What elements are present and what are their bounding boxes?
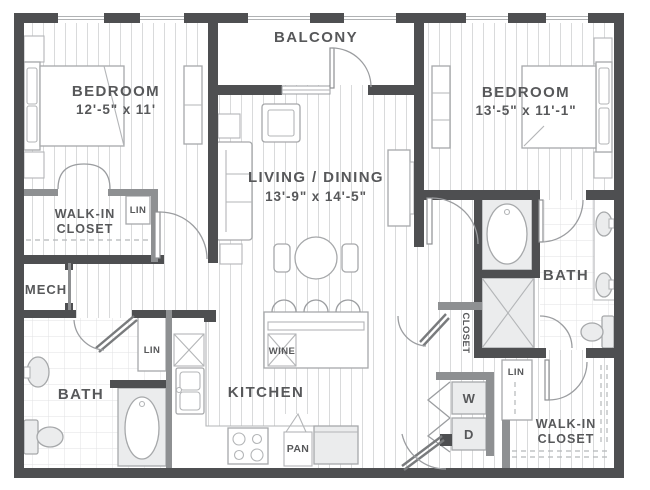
side-table	[220, 244, 242, 264]
window	[140, 13, 184, 23]
pantry-label: PAN	[287, 443, 310, 455]
mech-label: MECH	[25, 282, 67, 297]
bath-right-label: BATH	[543, 267, 589, 284]
bedroom-left-label: BEDROOM	[72, 83, 160, 100]
washer-label: W	[463, 391, 476, 406]
walk-in-closet-right-line1: WALK-IN	[536, 417, 596, 431]
floor-plan: BALCONY BEDROOM 12'-5" x 11' BEDROOM 13'…	[0, 0, 650, 490]
linen-closet-left-bath	[138, 315, 166, 371]
dining-chair	[342, 244, 358, 272]
living-dining-dims: 13'-9" x 14'-5"	[265, 189, 367, 204]
linen-label: LIN	[508, 367, 525, 378]
refrigerator	[314, 426, 358, 464]
wall-right	[614, 13, 624, 478]
bath-left-label: BATH	[58, 386, 104, 403]
living-dining-label: LIVING / DINING	[248, 169, 384, 186]
linen-label: LIN	[144, 345, 161, 356]
nightstand	[594, 152, 612, 178]
wall-living-bedroom-right	[414, 23, 424, 247]
walk-in-closet-left-line2: CLOSET	[57, 222, 114, 236]
kitchen-label: KITCHEN	[228, 384, 304, 401]
pillow	[27, 106, 37, 142]
dresser	[432, 66, 450, 148]
balcony-wall	[368, 85, 414, 95]
balcony-railing	[344, 13, 396, 23]
side-table	[218, 114, 240, 138]
nightstand	[24, 152, 44, 178]
hall-closet-label: CLOSET	[460, 313, 471, 354]
wall-bottom	[14, 468, 624, 478]
pillow	[599, 68, 609, 104]
dining-table	[295, 237, 337, 279]
pillow	[599, 108, 609, 144]
bathtub-left	[118, 388, 166, 466]
dining-chair	[274, 244, 290, 272]
nightstand	[24, 36, 44, 62]
sofa	[216, 142, 252, 240]
bedroom-right-label: BEDROOM	[482, 84, 570, 101]
nightstand	[594, 38, 612, 64]
walk-in-closet-left-line1: WALK-IN	[55, 207, 115, 221]
walk-in-closet-right-line2: CLOSET	[538, 432, 595, 446]
window	[546, 13, 588, 23]
bedroom-right-dims: 13'-5" x 11'-1"	[475, 103, 576, 118]
armchair-cushion	[268, 110, 294, 136]
wine-label: WINE	[269, 346, 295, 357]
balcony-wall	[218, 85, 282, 95]
dryer-label: D	[464, 427, 474, 442]
wall-living-bedroom-left	[208, 23, 218, 263]
linen-label: LIN	[130, 205, 147, 216]
tv	[410, 162, 414, 214]
pillow	[27, 68, 37, 104]
balcony-label: BALCONY	[274, 29, 358, 46]
window	[466, 13, 508, 23]
kitchen-sink	[176, 368, 204, 414]
bathtub-right	[482, 198, 532, 270]
bedroom-left-dims: 12'-5" x 11'	[76, 102, 156, 117]
window	[58, 13, 104, 23]
mech-partition	[68, 263, 71, 310]
wall-left	[14, 13, 24, 478]
balcony-railing	[248, 13, 310, 23]
tv-console	[388, 150, 410, 226]
range	[228, 428, 268, 464]
